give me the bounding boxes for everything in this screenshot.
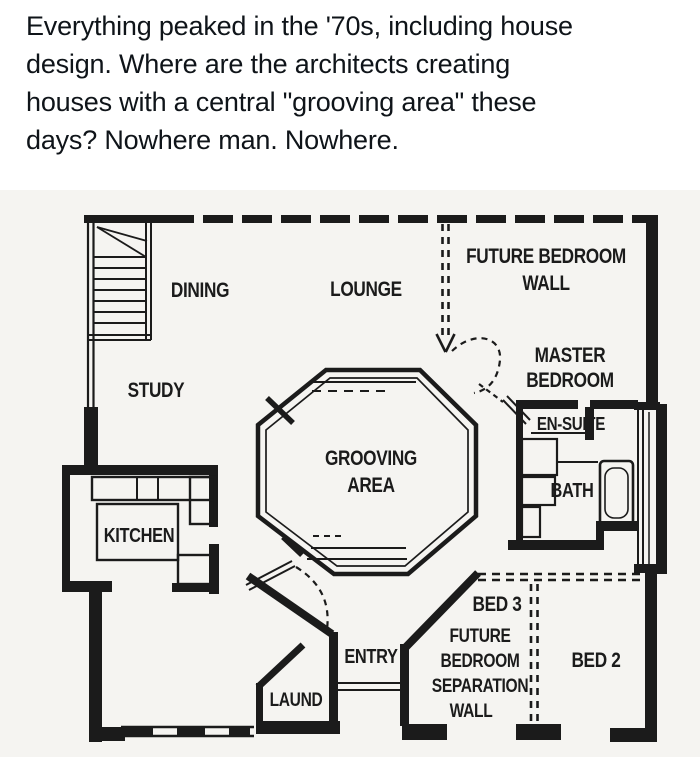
label-separation-wall: WALL <box>450 700 493 722</box>
label-study: STUDY <box>128 380 185 403</box>
label-dining: DINING <box>171 280 229 303</box>
label-grooving-area: AREA <box>347 475 395 498</box>
label-bath: BATH <box>551 478 594 501</box>
caption-line: design. Where are the architects creatin… <box>26 45 674 83</box>
label-future-bedroom-wall: WALL <box>522 273 570 296</box>
floor-plan-svg: DINING LOUNGE FUTURE BEDROOM WALL STUDY … <box>0 190 700 757</box>
caption-line: houses with a central "grooving area" th… <box>26 83 674 121</box>
label-separation-wall: SEPARATION <box>432 675 528 697</box>
caption-line: Everything peaked in the '70s, including… <box>26 7 674 45</box>
label-bed2: BED 2 <box>571 650 620 673</box>
label-kitchen: KITCHEN <box>104 523 175 546</box>
caption-line: days? Nowhere man. Nowhere. <box>26 121 674 159</box>
label-lounge: LOUNGE <box>330 279 402 302</box>
post-caption: Everything peaked in the '70s, including… <box>0 0 700 159</box>
label-separation-wall: FUTURE <box>449 625 510 647</box>
label-future-bedroom-wall: FUTURE BEDROOM <box>466 246 626 269</box>
label-separation-wall: BEDROOM <box>441 650 520 672</box>
label-ensuite: EN-SUITE <box>537 414 605 435</box>
label-laundry: LAUND <box>270 689 323 711</box>
label-grooving-area: GROOVING <box>325 448 417 471</box>
label-entry: ENTRY <box>344 644 397 667</box>
floor-plan-image[interactable]: DINING LOUNGE FUTURE BEDROOM WALL STUDY … <box>0 190 700 757</box>
label-master-bedroom: BEDROOM <box>526 370 614 393</box>
label-master-bedroom: MASTER <box>535 345 606 368</box>
label-bed3: BED 3 <box>472 594 521 617</box>
